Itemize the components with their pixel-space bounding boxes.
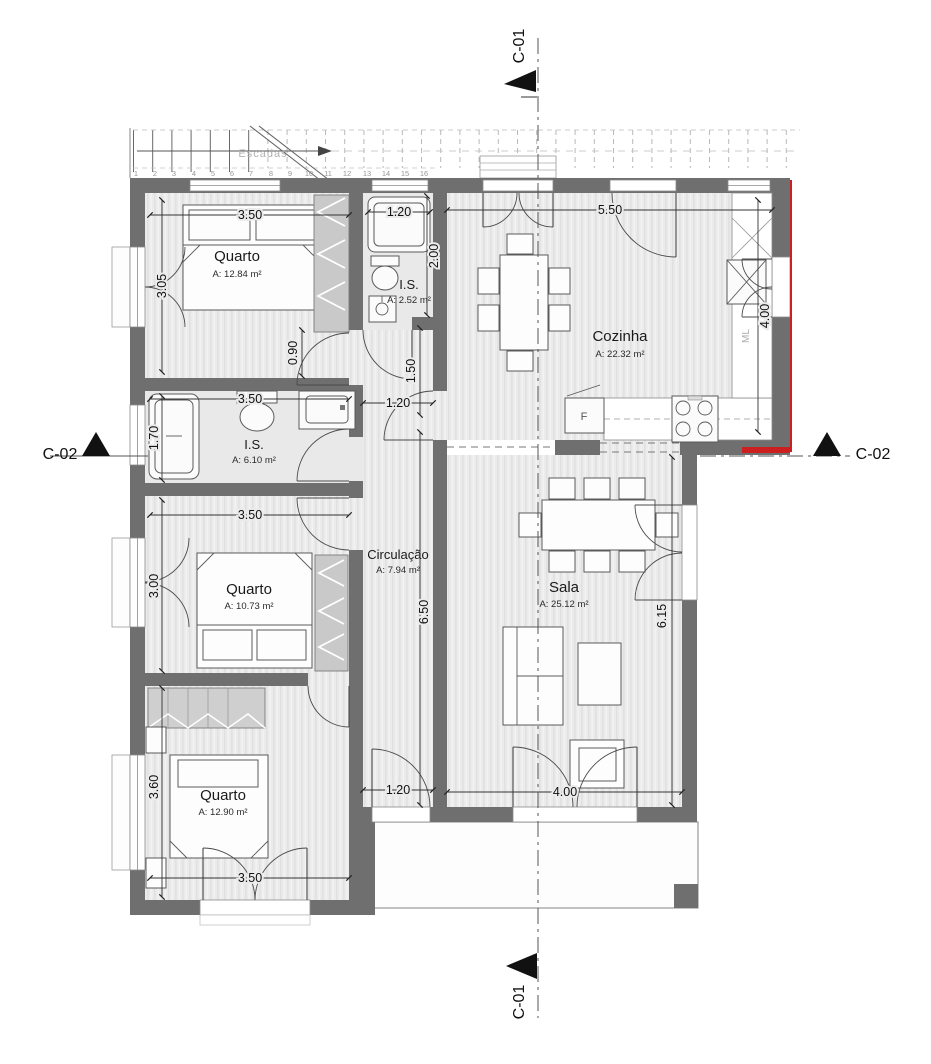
area-cozinha: A: 22.32 m² bbox=[595, 349, 644, 360]
quarto3-door-panel bbox=[200, 900, 310, 915]
section-label-c02-right: C-02 bbox=[856, 446, 891, 463]
area-is2: A: 6.10 m² bbox=[232, 455, 276, 466]
window-quarto3-left bbox=[112, 755, 145, 870]
dim-hall-b: 1.50 bbox=[404, 359, 418, 383]
area-circulacao: A: 7.94 m² bbox=[376, 565, 420, 576]
fridge-label: F bbox=[581, 411, 588, 423]
area-quarto2: A: 10.73 m² bbox=[224, 601, 273, 612]
dim-quarto3-height: 3.60 bbox=[147, 775, 161, 799]
window-quarto1-top bbox=[190, 180, 280, 191]
sala-door-panel bbox=[513, 807, 637, 822]
nightstand-2 bbox=[146, 858, 166, 888]
terrace bbox=[363, 822, 698, 908]
dim-hall-a: 0.90 bbox=[286, 341, 300, 365]
svg-text:2: 2 bbox=[153, 169, 157, 178]
svg-text:14: 14 bbox=[382, 169, 390, 178]
label-cozinha: Cozinha bbox=[592, 328, 648, 345]
toilet-is1 bbox=[371, 256, 399, 290]
section-arrow-c02-right bbox=[813, 432, 841, 456]
gap-quarto3-door bbox=[308, 673, 349, 686]
wardrobe-quarto2 bbox=[315, 555, 348, 671]
label-quarto1: Quarto bbox=[214, 248, 260, 265]
gap-kitchen-door bbox=[433, 391, 447, 440]
label-quarto2: Quarto bbox=[226, 581, 272, 598]
svg-text:12: 12 bbox=[343, 169, 351, 178]
dim-quarto3-width: 3.50 bbox=[238, 871, 262, 885]
gap-is2-door bbox=[349, 437, 363, 481]
wall-sala-right bbox=[682, 440, 697, 822]
svg-text:9: 9 bbox=[288, 169, 292, 178]
dim-cozinha-width: 5.50 bbox=[598, 203, 622, 217]
label-quarto3: Quarto bbox=[200, 787, 246, 804]
entrance-door-panel bbox=[483, 180, 553, 191]
section-label-c01-bottom: C-01 bbox=[511, 985, 528, 1020]
closet-quarto3 bbox=[148, 688, 265, 728]
section-arrow-c01-top bbox=[504, 70, 536, 92]
stairs: Escadas 1 2 3 4 5 6 7 8 9 10 11 12 13 14… bbox=[130, 126, 802, 180]
svg-text:7: 7 bbox=[249, 169, 253, 178]
label-sala: Sala bbox=[549, 579, 580, 596]
svg-text:3: 3 bbox=[172, 169, 176, 178]
window-quarto1-left bbox=[112, 247, 145, 327]
kitchen-right-door-panel bbox=[772, 257, 790, 317]
dim-quarto1-height: 3.05 bbox=[155, 274, 169, 298]
area-is1: A: 2.52 m² bbox=[387, 295, 431, 306]
label-circulacao: Circulação bbox=[367, 547, 428, 562]
dim-quarto2-height: 3.00 bbox=[147, 574, 161, 598]
svg-text:1: 1 bbox=[134, 169, 138, 178]
svg-text:10: 10 bbox=[305, 169, 313, 178]
svg-text:15: 15 bbox=[401, 169, 409, 178]
dim-circulacao-length: 6.50 bbox=[417, 600, 431, 624]
area-quarto1: A: 12.84 m² bbox=[212, 269, 261, 280]
dim-is1-width: 1.20 bbox=[387, 205, 411, 219]
section-arrow-c01-bottom bbox=[506, 953, 537, 979]
label-is1: I.S. bbox=[399, 277, 419, 292]
svg-text:5: 5 bbox=[211, 169, 215, 178]
dim-is2-width: 3.50 bbox=[238, 392, 262, 406]
kitchen-door2-panel bbox=[610, 180, 676, 191]
wall-is1-left bbox=[349, 193, 363, 330]
wardrobe-quarto1 bbox=[314, 195, 349, 332]
washing-machine-label: ML bbox=[741, 329, 752, 343]
section-label-c02-left: C-02 bbox=[43, 446, 78, 463]
floor-plan-drawing: Escadas 1 2 3 4 5 6 7 8 9 10 11 12 13 14… bbox=[0, 0, 931, 1059]
svg-text:6: 6 bbox=[230, 169, 234, 178]
quarto3-threshold bbox=[200, 915, 310, 925]
svg-text:11: 11 bbox=[324, 169, 332, 178]
wall-is2-bottom bbox=[145, 483, 349, 496]
window-quarto2-left bbox=[112, 538, 145, 627]
label-is2: I.S. bbox=[244, 437, 264, 452]
svg-text:8: 8 bbox=[269, 169, 273, 178]
wall-center bbox=[433, 193, 447, 807]
floor-plan-page: Escadas 1 2 3 4 5 6 7 8 9 10 11 12 13 14… bbox=[0, 0, 931, 1059]
dim-hall-width: 1.20 bbox=[386, 396, 410, 410]
svg-text:13: 13 bbox=[363, 169, 371, 178]
corridor-exit-panel bbox=[372, 807, 430, 822]
dim-sala-width: 4.00 bbox=[553, 785, 577, 799]
nightstand-1 bbox=[146, 727, 166, 753]
terrace-pillar bbox=[674, 884, 698, 908]
dim-sala-height: 6.15 bbox=[655, 604, 669, 628]
wall-terrace-left bbox=[349, 822, 375, 915]
window-is1-top bbox=[372, 180, 428, 191]
dim-exit-width: 1.20 bbox=[386, 783, 410, 797]
armchair bbox=[578, 643, 621, 705]
sala-right-door-panel bbox=[682, 505, 697, 600]
stove bbox=[672, 396, 718, 442]
dim-is1-height: 2.00 bbox=[427, 244, 441, 268]
tv-cabinet bbox=[570, 740, 624, 788]
area-sala: A: 25.12 m² bbox=[539, 599, 588, 610]
section-label-c01-top: C-01 bbox=[511, 29, 528, 64]
dim-is2-height: 1.70 bbox=[147, 426, 161, 450]
sofa bbox=[503, 627, 563, 725]
section-arrow-c02-left bbox=[82, 432, 110, 456]
dim-quarto2-width: 3.50 bbox=[238, 508, 262, 522]
entry-steps bbox=[480, 156, 556, 178]
red-line-c02 bbox=[742, 447, 790, 453]
gap-kitchen-sala bbox=[600, 440, 680, 455]
svg-text:4: 4 bbox=[192, 169, 196, 178]
dim-quarto1-width: 3.50 bbox=[238, 208, 262, 222]
dim-cozinha-height: 4.00 bbox=[758, 304, 772, 328]
sink-is2 bbox=[299, 391, 355, 429]
window-kitchen-top bbox=[728, 180, 770, 191]
svg-text:16: 16 bbox=[420, 169, 428, 178]
area-quarto3: A: 12.90 m² bbox=[198, 807, 247, 818]
gap-quarto2-door bbox=[349, 498, 363, 550]
stairs-label: Escadas bbox=[238, 148, 287, 160]
